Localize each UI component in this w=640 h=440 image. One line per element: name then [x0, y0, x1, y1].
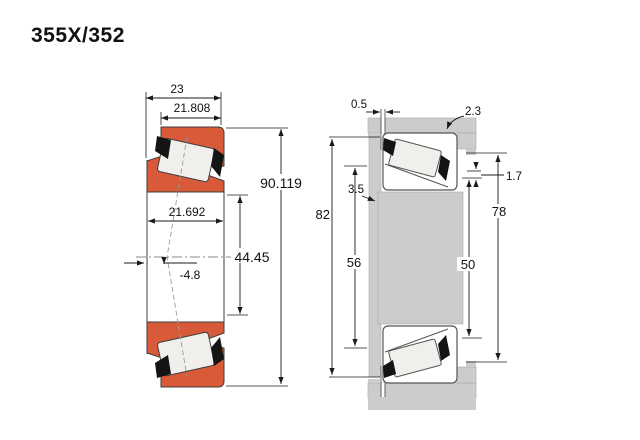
housing-band-bottom-extension [368, 397, 476, 410]
dim-cup-width-label: 21.808 [174, 101, 211, 115]
shaft-block [378, 192, 463, 324]
dim-shaft-fillet-radius-label: 3.5 [348, 184, 364, 196]
dim-shoulder-step-label: 1.7 [506, 171, 522, 183]
housing-shoulder [457, 133, 476, 149]
dim-housing-abutment-diameter-label: 50 [461, 257, 475, 272]
dim-shaft-backing-diameter-label: 82 [316, 207, 330, 222]
housing-left-lip [368, 133, 380, 137]
dim-backing-clearance-label: 0.5 [351, 99, 367, 111]
housing-shoulder-step [466, 149, 476, 155]
bearing-drawing: 355X/352 23 [0, 0, 640, 440]
page-title: 355X/352 [31, 24, 125, 47]
bearing-lower-half [147, 322, 224, 387]
dim-load-center-offset-label: -4.8 [180, 268, 201, 282]
dim-width-total-label: 23 [170, 82, 184, 96]
dim-outer-diameter-label: 90.119 [260, 175, 302, 191]
dim-shaft-abutment-diameter-label: 56 [347, 255, 361, 270]
clearance-slot [382, 109, 385, 133]
bearing-datasheet-page: 355X/352 23 [0, 0, 640, 440]
dim-housing-backing-diameter-label: 78 [492, 204, 506, 219]
dim-cone-width-label: 21.692 [169, 205, 206, 219]
dim-housing-fillet-radius-label: 2.3 [465, 106, 481, 118]
dim-bore-diameter-label: 44.45 [234, 249, 269, 265]
bearing-upper-half [147, 127, 224, 192]
